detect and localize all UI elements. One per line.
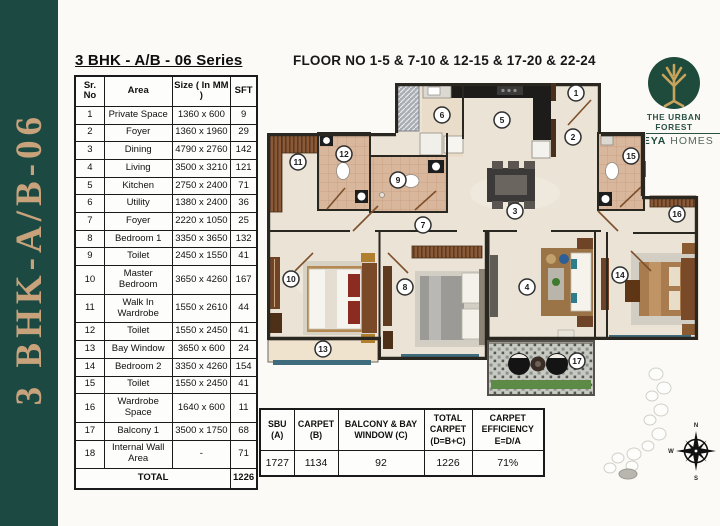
cell-sft: 25 xyxy=(231,213,257,231)
marker-11: 11 xyxy=(290,154,306,170)
svg-text:2: 2 xyxy=(571,132,576,142)
cell-sft: 68 xyxy=(231,422,257,440)
cell-sft: 9 xyxy=(231,106,257,124)
cell-size-mm: 3500 x 1750 xyxy=(172,422,231,440)
cell-srno: 1 xyxy=(75,106,104,124)
svg-text:10: 10 xyxy=(286,274,296,284)
cell-sft: 71 xyxy=(231,177,257,195)
side-banner: 3 BHK-A/B-06 xyxy=(0,0,58,526)
compass-north-label: N xyxy=(694,423,698,429)
cell-sft: 132 xyxy=(231,230,257,248)
cell-area-name: Wardrobe Space xyxy=(104,394,172,423)
summary-header-total-carpet: TOTAL CARPET (D=B+C) xyxy=(424,409,472,451)
cell-sft: 154 xyxy=(231,358,257,376)
cell-area-name: Dining xyxy=(104,142,172,160)
marker-12: 12 xyxy=(336,146,352,162)
svg-text:6: 6 xyxy=(440,110,445,120)
cell-srno: 11 xyxy=(75,294,104,323)
summary-value-total-carpet: 1226 xyxy=(424,451,472,477)
cell-size-mm: 3350 x 3650 xyxy=(172,230,231,248)
cell-area-name: Foyer xyxy=(104,124,172,142)
dining-table xyxy=(487,161,535,209)
cell-area-name: Internal Wall Area xyxy=(104,440,172,469)
cell-area-name: Walk In Wardrobe xyxy=(104,294,172,323)
table-row: 3 Dining 4790 x 2760 142 xyxy=(75,142,257,160)
total-value: 1226 xyxy=(231,469,257,489)
svg-text:1: 1 xyxy=(574,88,579,98)
marker-5: 5 xyxy=(494,112,510,128)
marker-9: 9 xyxy=(390,172,406,188)
page-title: 3 BHK - A/B - 06 Series xyxy=(75,52,242,69)
svg-text:11: 11 xyxy=(294,157,303,167)
cell-area-name: Foyer xyxy=(104,213,172,231)
cell-size-mm: 1640 x 600 xyxy=(172,394,231,423)
cell-size-mm: 3650 x 600 xyxy=(172,341,231,359)
summary-header-carpet: CARPET (B) xyxy=(294,409,338,451)
svg-text:4: 4 xyxy=(525,282,530,292)
marker-2: 2 xyxy=(565,129,581,145)
table-row: 7 Foyer 2220 x 1050 25 xyxy=(75,213,257,231)
svg-text:7: 7 xyxy=(421,220,426,230)
svg-text:8: 8 xyxy=(403,282,408,292)
cell-sft: 121 xyxy=(231,159,257,177)
area-summary-table: SBU (A) CARPET (B) BALCONY & BAY WINDOW … xyxy=(259,408,545,477)
compass-west-label: W xyxy=(668,449,674,455)
table-row: 13 Bay Window 3650 x 600 24 xyxy=(75,341,257,359)
total-label: TOTAL xyxy=(75,469,231,489)
marker-17: 17 xyxy=(569,353,585,369)
table-row: 18 Internal Wall Area - 71 xyxy=(75,440,257,469)
table-row: 9 Toilet 2450 x 1550 41 xyxy=(75,248,257,266)
marker-15: 15 xyxy=(623,148,639,164)
cell-size-mm: - xyxy=(172,440,231,469)
compass-south-label: S xyxy=(694,476,698,482)
cell-size-mm: 2220 x 1050 xyxy=(172,213,231,231)
cell-srno: 7 xyxy=(75,213,104,231)
marker-13: 13 xyxy=(315,341,331,357)
cell-area-name: Bedroom 1 xyxy=(104,230,172,248)
table-row: 8 Bedroom 1 3350 x 3650 132 xyxy=(75,230,257,248)
cell-size-mm: 1550 x 2450 xyxy=(172,323,231,341)
svg-text:5: 5 xyxy=(500,115,505,125)
cell-size-mm: 3500 x 3210 xyxy=(172,159,231,177)
cell-size-mm: 2450 x 1550 xyxy=(172,248,231,266)
cell-sft: 167 xyxy=(231,266,257,295)
col-header-size: Size ( In MM ) xyxy=(172,76,231,106)
cell-area-name: Toilet xyxy=(104,376,172,394)
svg-text:9: 9 xyxy=(396,175,401,185)
summary-value-carpet: 1134 xyxy=(294,451,338,477)
cell-area-name: Living xyxy=(104,159,172,177)
cell-size-mm: 3350 x 4260 xyxy=(172,358,231,376)
summary-value-row: 1727 1134 92 1226 71% xyxy=(260,451,544,477)
cell-sft: 24 xyxy=(231,341,257,359)
cell-size-mm: 1550 x 2450 xyxy=(172,376,231,394)
cell-sft: 142 xyxy=(231,142,257,160)
cell-sft: 41 xyxy=(231,248,257,266)
svg-text:16: 16 xyxy=(672,209,682,219)
cell-sft: 11 xyxy=(231,394,257,423)
service-shaft xyxy=(397,83,419,131)
cell-area-name: Bedroom 2 xyxy=(104,358,172,376)
cell-size-mm: 4790 x 2760 xyxy=(172,142,231,160)
cell-area-name: Balcony 1 xyxy=(104,422,172,440)
cell-srno: 8 xyxy=(75,230,104,248)
cell-size-mm: 2750 x 2400 xyxy=(172,177,231,195)
svg-text:12: 12 xyxy=(339,149,349,159)
table-row: 12 Toilet 1550 x 2450 41 xyxy=(75,323,257,341)
summary-header-efficiency: CARPET EFFICIENCY E=D/A xyxy=(472,409,544,451)
cell-size-mm: 3650 x 4260 xyxy=(172,266,231,295)
floor-areas xyxy=(267,83,699,395)
floor-plan: 1 2 3 4 5 6 7 8 9 10 11 12 13 14 15 16 1… xyxy=(265,83,715,405)
cell-size-mm: 1360 x 600 xyxy=(172,106,231,124)
cell-srno: 2 xyxy=(75,124,104,142)
col-header-srno: Sr. No xyxy=(75,76,104,106)
svg-text:13: 13 xyxy=(318,344,328,354)
svg-text:3: 3 xyxy=(513,206,518,216)
area-table-body: 1 Private Space 1360 x 600 9 2 Foyer 136… xyxy=(75,106,257,489)
marker-7: 7 xyxy=(415,217,431,233)
cell-sft: 29 xyxy=(231,124,257,142)
cell-area-name: Kitchen xyxy=(104,177,172,195)
marker-4: 4 xyxy=(519,279,535,295)
cell-area-name: Master Bedroom xyxy=(104,266,172,295)
floor-number-title: FLOOR NO 1-5 & 7-10 & 12-15 & 17-20 & 22… xyxy=(293,53,596,68)
marker-10: 10 xyxy=(283,271,299,287)
table-row: 4 Living 3500 x 3210 121 xyxy=(75,159,257,177)
cell-srno: 5 xyxy=(75,177,104,195)
cell-sft: 71 xyxy=(231,440,257,469)
table-row: 15 Toilet 1550 x 2450 41 xyxy=(75,376,257,394)
cell-srno: 9 xyxy=(75,248,104,266)
cell-srno: 10 xyxy=(75,266,104,295)
svg-text:14: 14 xyxy=(615,270,625,280)
cell-area-name: Bay Window xyxy=(104,341,172,359)
marker-6: 6 xyxy=(434,107,450,123)
cell-srno: 6 xyxy=(75,195,104,213)
compass-rose: N E S W xyxy=(668,420,720,484)
table-header-row: Sr. No Area Size ( In MM ) SFT xyxy=(75,76,257,106)
cell-area-name: Toilet xyxy=(104,248,172,266)
cell-sft: 44 xyxy=(231,294,257,323)
cell-srno: 15 xyxy=(75,376,104,394)
summary-header-row: SBU (A) CARPET (B) BALCONY & BAY WINDOW … xyxy=(260,409,544,451)
cell-size-mm: 1360 x 1960 xyxy=(172,124,231,142)
table-row: 10 Master Bedroom 3650 x 4260 167 xyxy=(75,266,257,295)
marker-1: 1 xyxy=(568,85,584,101)
marker-14: 14 xyxy=(612,267,628,283)
summary-value-balcony: 92 xyxy=(338,451,424,477)
summary-header-sbu: SBU (A) xyxy=(260,409,294,451)
svg-text:17: 17 xyxy=(572,356,582,366)
cell-srno: 14 xyxy=(75,358,104,376)
table-row: 5 Kitchen 2750 x 2400 71 xyxy=(75,177,257,195)
summary-value-sbu: 1727 xyxy=(260,451,294,477)
cell-srno: 18 xyxy=(75,440,104,469)
cell-srno: 12 xyxy=(75,323,104,341)
table-row: 1 Private Space 1360 x 600 9 xyxy=(75,106,257,124)
table-row: 16 Wardrobe Space 1640 x 600 11 xyxy=(75,394,257,423)
area-statement-table: Sr. No Area Size ( In MM ) SFT 1 Private… xyxy=(74,75,258,490)
col-header-sft: SFT xyxy=(231,76,257,106)
unit-type-vertical-label: 3 BHK-A/B-06 xyxy=(8,112,51,413)
cell-size-mm: 1550 x 2610 xyxy=(172,294,231,323)
table-row: 2 Foyer 1360 x 1960 29 xyxy=(75,124,257,142)
summary-header-balcony: BALCONY & BAY WINDOW (C) xyxy=(338,409,424,451)
cell-srno: 13 xyxy=(75,341,104,359)
cell-sft: 41 xyxy=(231,376,257,394)
cell-srno: 4 xyxy=(75,159,104,177)
total-row: TOTAL 1226 xyxy=(75,469,257,489)
summary-value-efficiency: 71% xyxy=(472,451,544,477)
table-row: 17 Balcony 1 3500 x 1750 68 xyxy=(75,422,257,440)
marker-3: 3 xyxy=(507,203,523,219)
cell-size-mm: 1380 x 2400 xyxy=(172,195,231,213)
marker-8: 8 xyxy=(397,279,413,295)
col-header-area: Area xyxy=(104,76,172,106)
table-row: 14 Bedroom 2 3350 x 4260 154 xyxy=(75,358,257,376)
cell-sft: 41 xyxy=(231,323,257,341)
cell-srno: 16 xyxy=(75,394,104,423)
table-row: 11 Walk In Wardrobe 1550 x 2610 44 xyxy=(75,294,257,323)
cell-area-name: Utility xyxy=(104,195,172,213)
cell-area-name: Toilet xyxy=(104,323,172,341)
marker-16: 16 xyxy=(669,206,685,222)
cell-srno: 17 xyxy=(75,422,104,440)
cell-sft: 36 xyxy=(231,195,257,213)
svg-text:15: 15 xyxy=(626,151,636,161)
table-row: 6 Utility 1380 x 2400 36 xyxy=(75,195,257,213)
cell-area-name: Private Space xyxy=(104,106,172,124)
cell-srno: 3 xyxy=(75,142,104,160)
